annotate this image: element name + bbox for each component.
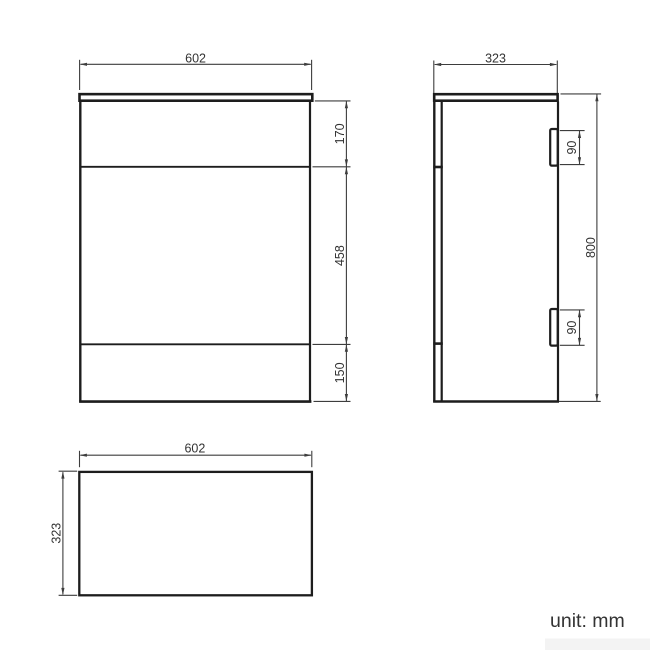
- svg-text:323: 323: [50, 523, 64, 544]
- svg-text:90: 90: [565, 321, 579, 335]
- svg-text:602: 602: [185, 51, 206, 65]
- svg-text:800: 800: [584, 237, 598, 258]
- svg-text:323: 323: [485, 51, 506, 65]
- svg-text:170: 170: [333, 123, 347, 144]
- svg-text:90: 90: [565, 141, 579, 155]
- svg-text:150: 150: [333, 362, 347, 383]
- svg-text:602: 602: [184, 442, 205, 456]
- svg-text:unit: mm: unit: mm: [550, 610, 625, 632]
- svg-text:458: 458: [333, 245, 347, 266]
